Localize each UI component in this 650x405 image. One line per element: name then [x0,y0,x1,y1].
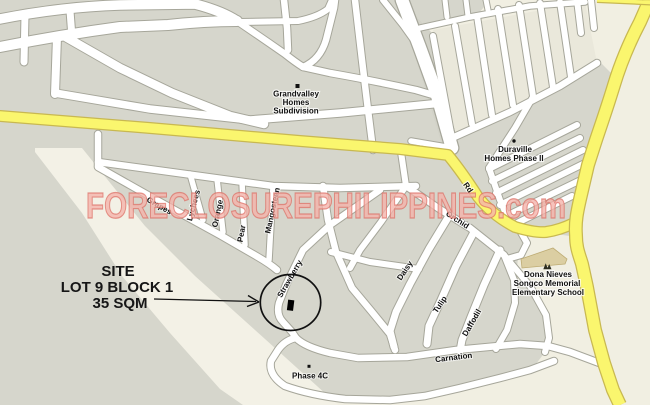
svg-text:Homes Phase II: Homes Phase II [484,154,543,163]
svg-text:35 SQM: 35 SQM [92,295,147,312]
svg-text:Dona Nieves: Dona Nieves [524,270,573,279]
svg-text:Elementary School: Elementary School [512,288,584,297]
svg-text:LOT 9 BLOCK 1: LOT 9 BLOCK 1 [61,279,174,296]
svg-text:Subdivision: Subdivision [273,107,318,116]
svg-text:SITE: SITE [101,263,134,280]
svg-text:Songco Memorial: Songco Memorial [514,279,581,288]
svg-text:Phase 4C: Phase 4C [292,372,328,381]
svg-text:Duraville: Duraville [498,145,532,154]
svg-text:FORECLOSUREPHILIPPINES.com: FORECLOSUREPHILIPPINES.com [86,185,566,226]
